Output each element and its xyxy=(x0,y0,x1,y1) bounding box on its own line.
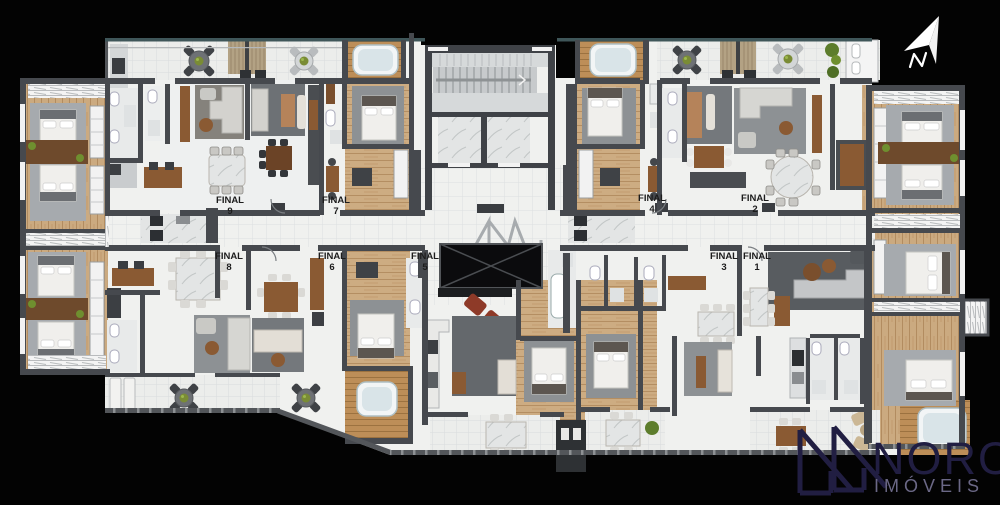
svg-text:9: 9 xyxy=(227,206,232,217)
svg-text:FINAL: FINAL xyxy=(318,251,346,262)
svg-text:FINAL: FINAL xyxy=(215,251,243,262)
svg-text:1: 1 xyxy=(754,262,760,273)
svg-text:5: 5 xyxy=(422,262,428,273)
svg-text:FINAL: FINAL xyxy=(743,251,771,262)
svg-text:6: 6 xyxy=(329,262,334,273)
svg-text:4: 4 xyxy=(649,204,655,215)
svg-text:FINAL: FINAL xyxy=(710,251,738,262)
svg-text:3: 3 xyxy=(721,262,726,273)
svg-text:8: 8 xyxy=(226,262,231,273)
svg-text:IMÓVEIS: IMÓVEIS xyxy=(874,475,984,496)
svg-text:FINAL: FINAL xyxy=(638,193,666,204)
svg-text:FINAL: FINAL xyxy=(741,193,769,204)
svg-text:7: 7 xyxy=(333,206,338,217)
svg-text:FINAL: FINAL xyxy=(411,251,439,262)
svg-text:FINAL: FINAL xyxy=(216,195,244,206)
svg-text:2: 2 xyxy=(752,204,757,215)
svg-text:FINAL: FINAL xyxy=(322,195,350,206)
